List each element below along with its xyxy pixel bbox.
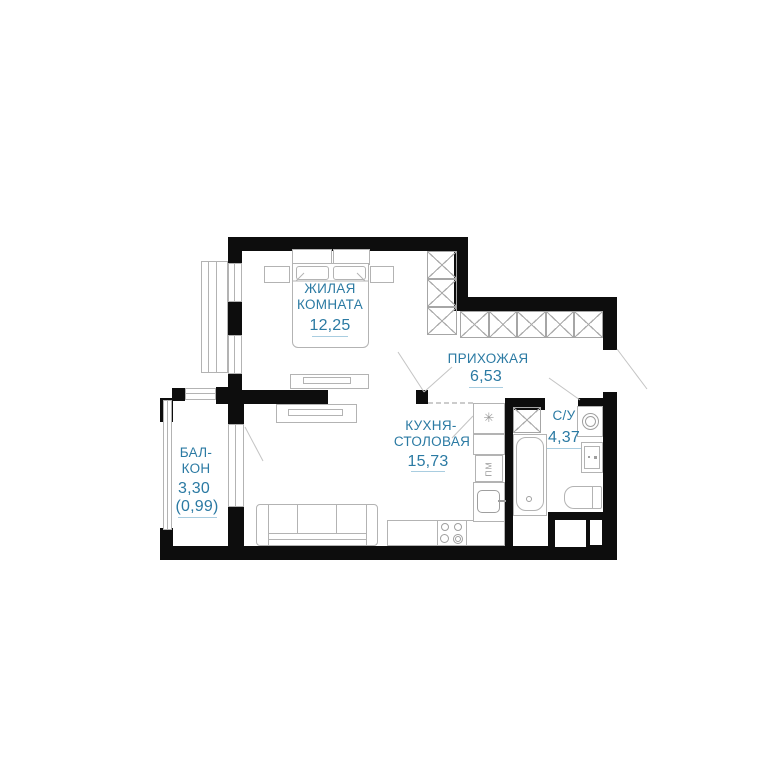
- balcony-door-unit-line: [235, 425, 236, 506]
- wall-entry-right-upper: [603, 297, 617, 350]
- bathtub-drain: [526, 496, 532, 502]
- wall-hall-stub: [416, 390, 428, 404]
- living-opening-line-1: [398, 352, 424, 392]
- balcony-top-window: [185, 388, 216, 400]
- living-window-gap-top: [228, 263, 242, 302]
- living-room-name-line2: КОМНАТА: [270, 297, 390, 314]
- balcony-door-unit: [228, 424, 244, 507]
- floor-plan: ✳ ПМ ЖИЛАЯ КОМНАТА 12,25 ПРИХОЖАЯ 6,53 К…: [0, 0, 768, 768]
- wall-kitchen-bath: [505, 398, 513, 548]
- hall-wardrobe-cell-4: [546, 311, 574, 338]
- living-room-area-underline: [312, 336, 348, 337]
- tv-living: [303, 377, 351, 384]
- bath-cabinet-hatched: [513, 407, 541, 433]
- sofa-armrest-right-line: [366, 505, 367, 545]
- hall-wardrobe-cell-5: [574, 311, 603, 338]
- balcony-door-swing: [245, 427, 263, 461]
- kitchen-sink: [477, 490, 500, 513]
- shaft-niche-1: [555, 520, 586, 547]
- balcony-top-window-line: [186, 393, 215, 394]
- wall-hallway-top: [454, 297, 617, 311]
- stove-burner-1: [441, 523, 449, 531]
- pillow-left: [296, 266, 329, 280]
- tv-kitchen: [288, 409, 343, 416]
- sofa-divider-2: [336, 505, 337, 533]
- wall-left-pier: [228, 302, 242, 335]
- living-wardrobe-cell-1: [427, 251, 457, 279]
- bathroom-name: С/У: [544, 408, 584, 425]
- living-window-line-2: [216, 262, 217, 372]
- hallway-area: 6,53: [426, 367, 546, 387]
- hallway-name: ПРИХОЖАЯ: [428, 351, 548, 368]
- bathroom-area: 4,37: [544, 428, 584, 448]
- living-room-area: 12,25: [270, 316, 390, 336]
- living-window-unit: [201, 261, 228, 373]
- wall-balcony-kitchen-top: [228, 390, 244, 424]
- washing-machine-door-inner: [585, 416, 596, 427]
- kitchen-name-line2: СТОЛОВАЯ: [372, 434, 492, 451]
- balcony-name-line2: КОН: [166, 461, 226, 478]
- washbasin-tap-dot-2: [594, 456, 597, 459]
- wall-left-top: [228, 237, 242, 263]
- balcony-area-reduced: (0,99): [167, 497, 227, 517]
- balcony-area-underline: [178, 517, 217, 518]
- kitchen-area-underline: [411, 471, 445, 472]
- shaft-niche-2: [590, 520, 602, 545]
- living-window-gap-bottom: [228, 335, 242, 374]
- hall-wardrobe-cell-1: [460, 311, 489, 338]
- wall-balcony-corner-tr: [216, 387, 228, 404]
- kitchen-name-line1: КУХНЯ-: [371, 418, 491, 435]
- hall-wardrobe-cell-3: [517, 311, 546, 338]
- sofa-seat-line-2: [269, 539, 366, 540]
- line-overlay: [0, 0, 768, 768]
- living-window-gap-top-line: [234, 264, 235, 301]
- living-room-name-line1: ЖИЛАЯ: [270, 281, 390, 298]
- living-window-gap-bottom-line: [234, 336, 235, 373]
- washbasin-bowl: [584, 446, 600, 469]
- hall-wardrobe-cell-2: [489, 311, 517, 338]
- kitchen-faucet: [498, 500, 506, 502]
- toilet-tank-line: [592, 487, 593, 508]
- living-wardrobe-cell-2: [427, 279, 457, 307]
- washbasin-tap-dot-1: [588, 456, 590, 458]
- bathroom-door-swing: [549, 378, 580, 400]
- living-window-line-1: [208, 262, 209, 372]
- sofa-divider-1: [297, 505, 298, 533]
- stove-burner-2: [454, 523, 462, 531]
- wall-balcony-corner-tl-b: [172, 388, 185, 401]
- stove-burner-4-inner: [455, 536, 461, 542]
- kitchen-area: 15,73: [368, 452, 488, 472]
- balcony-name-line1: БАЛ-: [166, 445, 226, 462]
- wall-left-bottom: [228, 374, 242, 390]
- bathroom-area-underline: [547, 448, 581, 449]
- living-wardrobe-cell-3: [427, 307, 457, 335]
- sofa-seat-line-1: [269, 533, 366, 534]
- hallway-area-underline: [469, 387, 503, 388]
- wall-balcony-corner-bl: [160, 528, 173, 548]
- pillow-right: [333, 266, 366, 280]
- balcony-area: 3,30: [164, 479, 224, 499]
- toilet: [564, 486, 602, 509]
- entry-door-swing: [617, 349, 647, 389]
- stove-burner-3: [440, 534, 449, 543]
